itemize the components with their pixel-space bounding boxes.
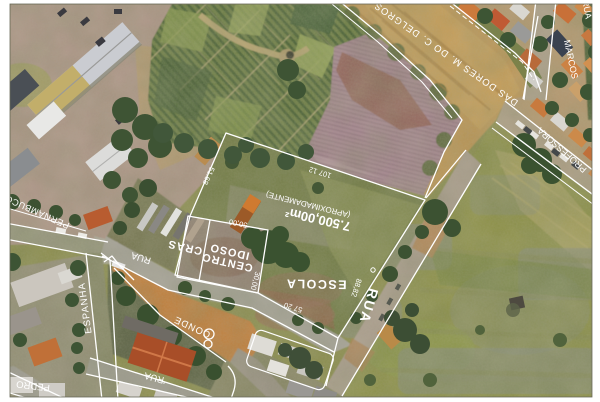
svg-text:ESCOLA: ESCOLA [285,276,346,291]
